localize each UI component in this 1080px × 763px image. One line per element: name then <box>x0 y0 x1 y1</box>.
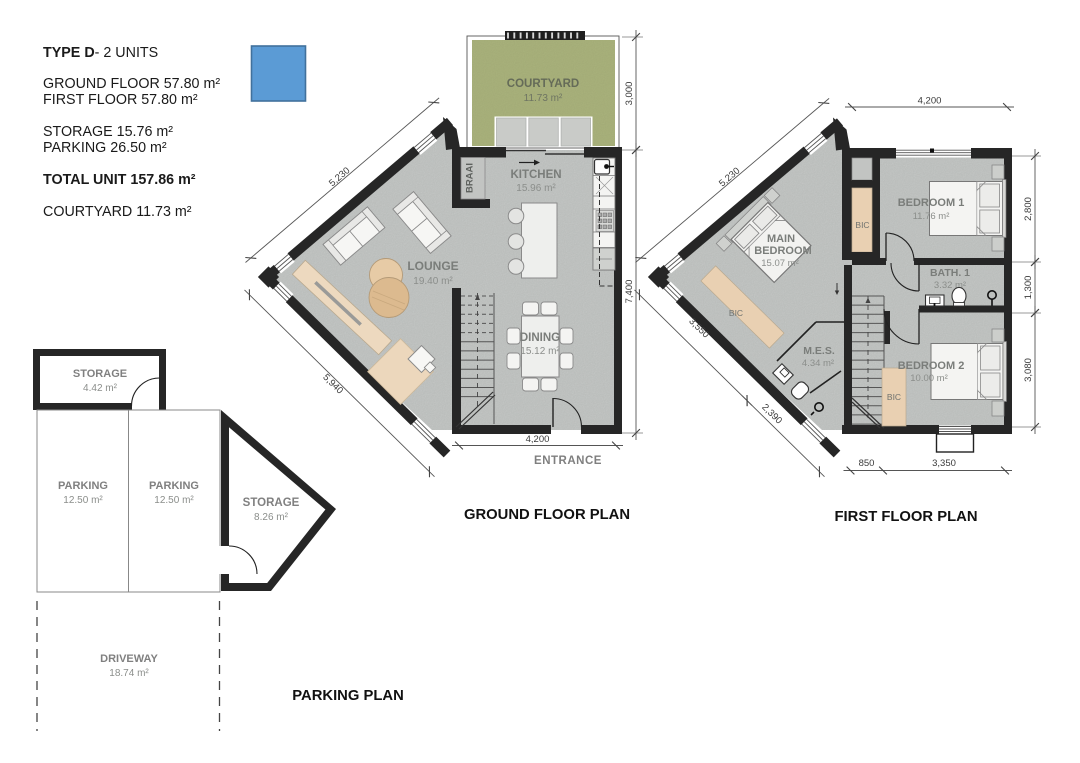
svg-text:TYPE D- 2 UNITS: TYPE D- 2 UNITS <box>43 45 158 61</box>
svg-text:COURTYARD: COURTYARD <box>507 78 579 90</box>
svg-text:TOTAL UNIT 157.86 m²: TOTAL UNIT 157.86 m² <box>43 172 196 188</box>
svg-text:4,200: 4,200 <box>526 434 550 445</box>
svg-text:DRIVEWAY: DRIVEWAY <box>100 653 158 665</box>
svg-text:3,080: 3,080 <box>1023 358 1034 382</box>
svg-text:BEDROOM: BEDROOM <box>754 245 811 257</box>
svg-text:11.76 m²: 11.76 m² <box>913 211 950 222</box>
svg-text:BEDROOM 1: BEDROOM 1 <box>898 197 965 209</box>
svg-text:15.96 m²: 15.96 m² <box>516 183 556 194</box>
svg-text:GROUND FLOOR PLAN: GROUND FLOOR PLAN <box>464 507 630 523</box>
svg-text:FIRST FLOOR 57.80 m²: FIRST FLOOR 57.80 m² <box>43 92 198 108</box>
svg-text:DINING: DINING <box>520 332 560 344</box>
svg-text:ENTRANCE: ENTRANCE <box>534 455 602 467</box>
svg-text:11.73 m²: 11.73 m² <box>524 93 563 104</box>
svg-text:PARKING 26.50 m²: PARKING 26.50 m² <box>43 140 167 156</box>
svg-text:BIC: BIC <box>855 220 869 230</box>
svg-text:BIC: BIC <box>729 308 743 318</box>
svg-text:7,400: 7,400 <box>624 280 635 304</box>
svg-text:GROUND FLOOR 57.80 m²: GROUND FLOOR 57.80 m² <box>43 76 220 92</box>
svg-text:12.50 m²: 12.50 m² <box>154 495 194 506</box>
svg-text:8.26 m²: 8.26 m² <box>254 512 289 523</box>
svg-text:4.34 m²: 4.34 m² <box>802 358 834 369</box>
svg-text:STORAGE: STORAGE <box>243 497 300 509</box>
svg-text:10.00 m²: 10.00 m² <box>910 373 948 384</box>
svg-text:15.07 m²: 15.07 m² <box>761 258 799 269</box>
svg-text:2,800: 2,800 <box>1023 197 1034 221</box>
svg-text:BIC: BIC <box>887 392 901 402</box>
svg-text:3,000: 3,000 <box>624 82 635 106</box>
svg-text:18.74 m²: 18.74 m² <box>109 668 149 679</box>
svg-text:15.12 m²: 15.12 m² <box>520 346 560 357</box>
svg-text:COURTYARD 11.73 m²: COURTYARD 11.73 m² <box>43 204 192 220</box>
svg-text:3,350: 3,350 <box>932 458 956 469</box>
svg-text:MAIN: MAIN <box>767 233 795 245</box>
svg-text:PARKING: PARKING <box>58 480 108 492</box>
svg-text:850: 850 <box>859 458 875 469</box>
svg-text:FIRST FLOOR PLAN: FIRST FLOOR PLAN <box>834 509 977 525</box>
svg-text:BRAAI: BRAAI <box>465 163 476 193</box>
svg-text:M.E.S.: M.E.S. <box>803 345 835 357</box>
svg-text:LOUNGE: LOUNGE <box>407 259 458 273</box>
svg-text:4,200: 4,200 <box>918 96 942 107</box>
svg-text:19.40 m²: 19.40 m² <box>413 276 453 287</box>
svg-text:4.42 m²: 4.42 m² <box>83 383 118 394</box>
svg-text:PARKING PLAN: PARKING PLAN <box>292 688 404 704</box>
svg-text:1,300: 1,300 <box>1023 276 1034 300</box>
svg-text:BATH. 1: BATH. 1 <box>930 267 970 279</box>
svg-text:STORAGE: STORAGE <box>73 368 127 380</box>
svg-text:PARKING: PARKING <box>149 480 199 492</box>
svg-text:12.50 m²: 12.50 m² <box>63 495 103 506</box>
svg-text:STORAGE 15.76 m²: STORAGE 15.76 m² <box>43 124 173 140</box>
svg-text:BEDROOM 2: BEDROOM 2 <box>898 360 965 372</box>
svg-text:KITCHEN: KITCHEN <box>510 169 561 181</box>
